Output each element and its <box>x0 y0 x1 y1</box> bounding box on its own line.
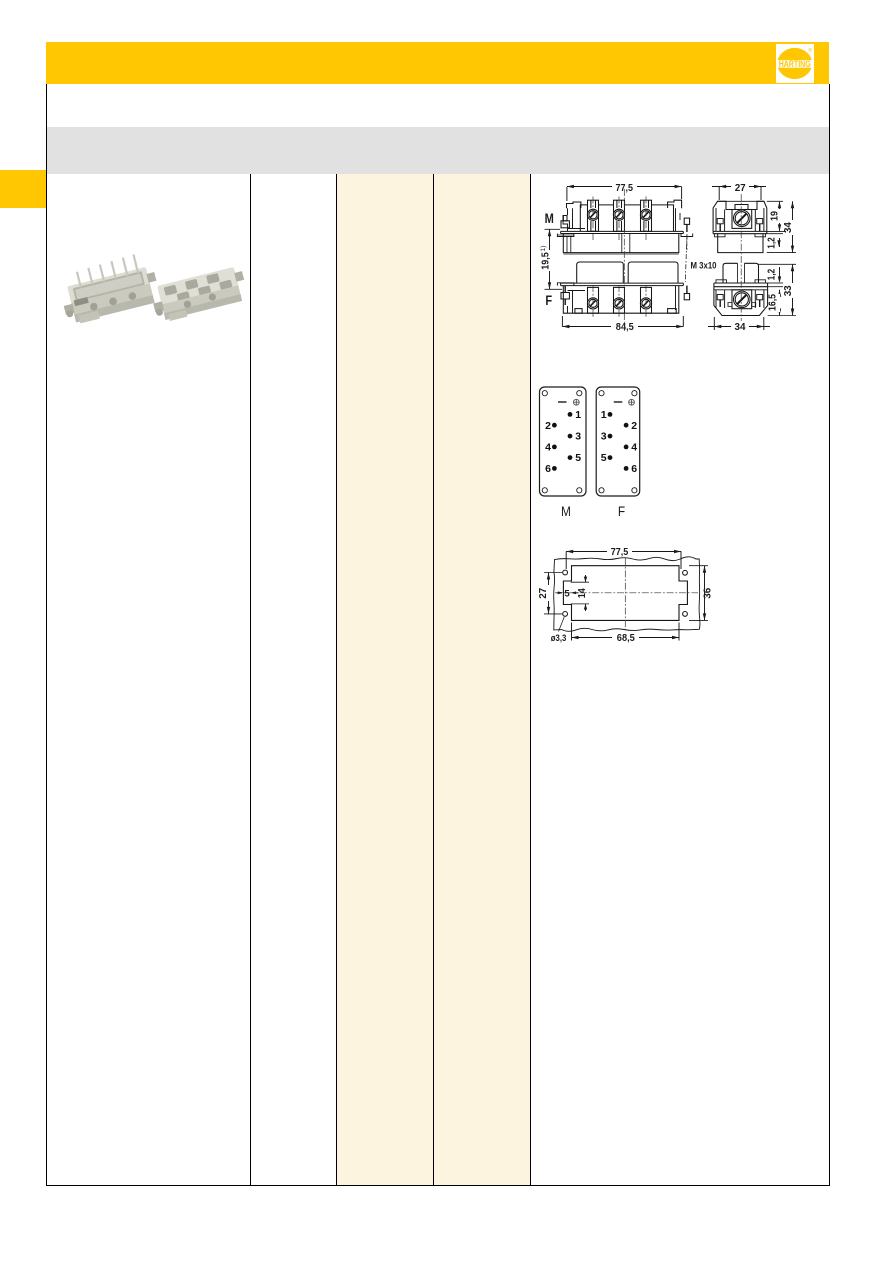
svg-text:14: 14 <box>576 588 588 598</box>
svg-text:84,5: 84,5 <box>616 321 634 333</box>
svg-text:F: F <box>618 503 625 519</box>
svg-text:F: F <box>545 293 552 308</box>
svg-text:34: 34 <box>782 222 794 233</box>
svg-text:36: 36 <box>701 588 713 599</box>
svg-text:33: 33 <box>782 285 794 296</box>
svg-text:34: 34 <box>735 321 746 333</box>
svg-text:1: 1 <box>575 409 581 421</box>
svg-text:1): 1) <box>540 245 547 251</box>
svg-text:2: 2 <box>631 420 637 432</box>
svg-text:1,2: 1,2 <box>766 269 778 281</box>
svg-text:5: 5 <box>575 452 581 464</box>
svg-text:6: 6 <box>545 463 551 475</box>
svg-text:16,5: 16,5 <box>767 294 779 311</box>
svg-text:4: 4 <box>631 442 637 454</box>
svg-text:1,2: 1,2 <box>766 237 778 249</box>
svg-text:19,5: 19,5 <box>539 252 551 270</box>
svg-text:68,5: 68,5 <box>617 632 635 644</box>
svg-text:3: 3 <box>575 431 581 443</box>
svg-text:M: M <box>561 503 571 519</box>
svg-text:2: 2 <box>545 420 551 432</box>
svg-text:M 3x10: M 3x10 <box>691 260 717 271</box>
svg-text:77,5: 77,5 <box>611 546 629 558</box>
svg-text:27: 27 <box>735 182 746 194</box>
svg-text:ø3,3: ø3,3 <box>551 633 567 644</box>
svg-text:5: 5 <box>564 588 570 599</box>
svg-text:6: 6 <box>631 463 637 475</box>
svg-text:5: 5 <box>601 452 607 464</box>
svg-text:19: 19 <box>769 211 781 221</box>
svg-text:3: 3 <box>601 431 607 443</box>
svg-text:M: M <box>545 211 554 226</box>
svg-text:27: 27 <box>537 588 549 599</box>
svg-text:1: 1 <box>601 409 607 421</box>
svg-text:4: 4 <box>545 442 551 454</box>
